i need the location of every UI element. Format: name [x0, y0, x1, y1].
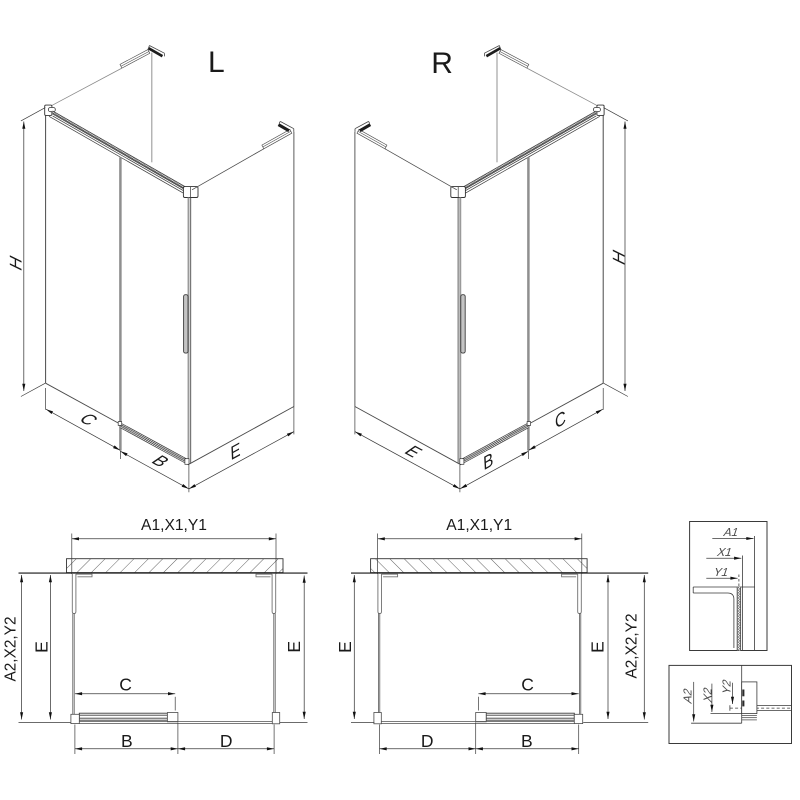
svg-text:L: L	[208, 46, 225, 79]
svg-text:R: R	[431, 47, 453, 80]
svg-text:B: B	[147, 452, 174, 470]
svg-text:A1,X1,Y1: A1,X1,Y1	[446, 517, 512, 534]
svg-text:C: C	[554, 406, 566, 433]
svg-text:D: D	[220, 731, 233, 751]
svg-text:C: C	[119, 674, 132, 694]
svg-text:C: C	[75, 410, 103, 428]
svg-text:E: E	[400, 443, 427, 461]
svg-text:H: H	[7, 252, 26, 273]
svg-text:E: E	[32, 641, 52, 653]
svg-text:A2,X2,Y2: A2,X2,Y2	[2, 616, 19, 681]
svg-text:A1,X1,Y1: A1,X1,Y1	[141, 517, 207, 534]
svg-text:E: E	[230, 438, 241, 464]
svg-text:E: E	[284, 641, 304, 653]
svg-text:A2,X2,Y2: A2,X2,Y2	[624, 613, 641, 678]
svg-text:C: C	[521, 674, 534, 694]
svg-text:D: D	[421, 731, 434, 751]
svg-text:B: B	[521, 731, 533, 751]
svg-text:B: B	[121, 731, 133, 751]
svg-text:B: B	[483, 448, 494, 475]
svg-text:E: E	[335, 641, 355, 653]
svg-text:H: H	[609, 246, 628, 267]
svg-text:E: E	[587, 641, 607, 653]
